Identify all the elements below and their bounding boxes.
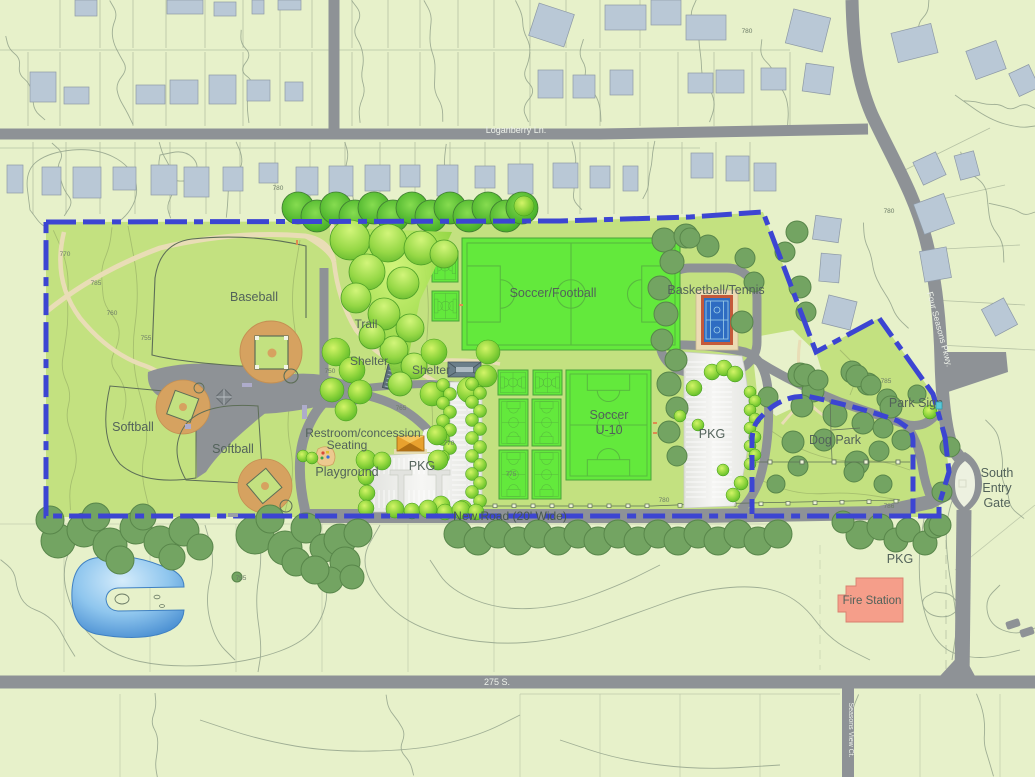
svg-text:Soccer: Soccer — [590, 408, 629, 422]
svg-text:786: 786 — [884, 503, 895, 510]
svg-text:Seasons View Ct.: Seasons View Ct. — [847, 702, 854, 757]
svg-text:New Road (20' Wide): New Road (20' Wide) — [453, 509, 567, 523]
svg-text:780: 780 — [884, 208, 895, 215]
svg-text:755: 755 — [236, 575, 247, 582]
svg-text:Dog Park: Dog Park — [809, 433, 862, 447]
svg-text:780: 780 — [659, 497, 670, 504]
svg-text:Park Sign: Park Sign — [889, 396, 943, 410]
svg-text:Playground: Playground — [315, 465, 378, 479]
svg-text:780: 780 — [742, 28, 753, 35]
svg-text:Softball: Softball — [212, 442, 254, 456]
svg-text:PKG: PKG — [699, 427, 725, 441]
svg-text:765: 765 — [396, 405, 407, 412]
svg-text:Shelter: Shelter — [412, 363, 450, 377]
svg-text:Basketball/Tennis: Basketball/Tennis — [667, 283, 764, 297]
svg-text:Soccer/Football: Soccer/Football — [510, 286, 597, 300]
svg-text:Baseball: Baseball — [230, 290, 278, 304]
svg-text:Loganberry Ln.: Loganberry Ln. — [486, 125, 547, 135]
svg-text:PKG: PKG — [887, 552, 913, 566]
svg-text:780: 780 — [273, 185, 284, 192]
svg-text:Seating: Seating — [327, 438, 368, 452]
svg-text:750: 750 — [325, 368, 336, 375]
svg-text:Entry: Entry — [982, 481, 1012, 495]
svg-text:Softball: Softball — [112, 420, 154, 434]
svg-text:770: 770 — [60, 251, 71, 258]
svg-text:Fire Station: Fire Station — [843, 595, 902, 607]
svg-text:770: 770 — [444, 440, 455, 447]
svg-text:PKG: PKG — [409, 459, 435, 473]
svg-text:Gate: Gate — [983, 496, 1010, 510]
svg-text:760: 760 — [107, 310, 118, 317]
svg-text:South: South — [981, 466, 1014, 480]
svg-text:U-10: U-10 — [595, 423, 622, 437]
svg-text:Trail: Trail — [355, 317, 378, 331]
svg-text:Shelter: Shelter — [350, 354, 388, 368]
svg-text:755: 755 — [141, 335, 152, 342]
svg-text:785: 785 — [881, 378, 892, 385]
svg-text:785: 785 — [91, 280, 102, 287]
svg-text:775: 775 — [506, 471, 517, 478]
svg-text:275 S.: 275 S. — [484, 677, 510, 687]
